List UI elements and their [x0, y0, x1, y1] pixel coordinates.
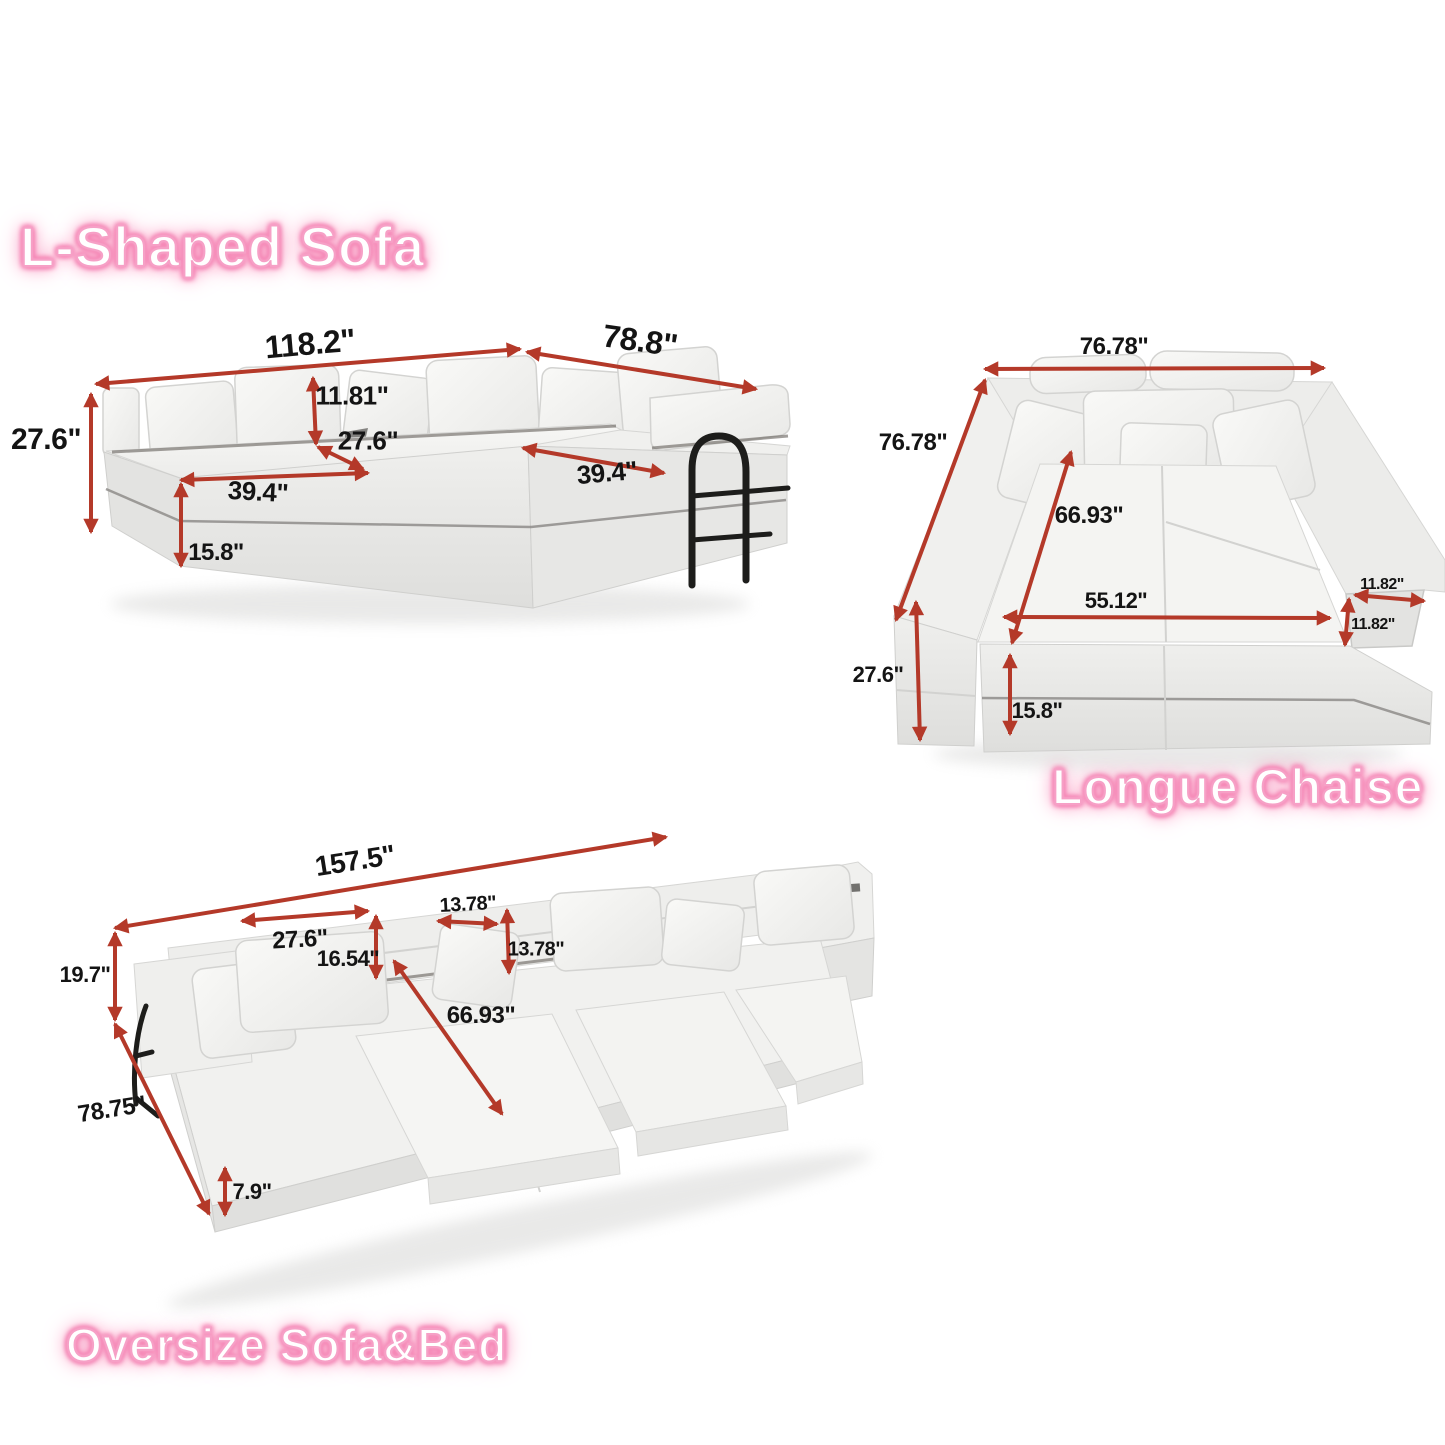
pillow	[753, 864, 855, 946]
dim-lc-overall-width: 76.78"	[1080, 333, 1148, 361]
dim-ov-bed-diagonal: 66.93"	[447, 1002, 515, 1030]
dim-l-seat-depth: 27.6"	[338, 426, 398, 457]
dim-l-seat-width-left: 39.4"	[227, 475, 289, 509]
dim-lc-overall-depth: 76.78"	[879, 429, 947, 457]
pillow	[1150, 351, 1295, 392]
dim-ov-small-pillow-height: 13.78"	[508, 939, 565, 962]
arm-cushion-left	[103, 388, 139, 456]
dim-lc-seat-diagonal: 66.93"	[1055, 502, 1123, 530]
dim-l-overall-width: 118.2"	[263, 322, 356, 367]
dim-ov-back-height: 19.7"	[60, 962, 111, 988]
section-title-l-shaped-sofa: L-Shaped Sofa	[20, 214, 425, 279]
section-title-oversize-sofa-bed: Oversize Sofa&Bed	[66, 1318, 507, 1372]
l-shaped-sofa-illustration	[91, 346, 790, 624]
dim-lc-arm-width: 11.82"	[1360, 576, 1404, 594]
section-title-longue-chaise: Longue Chaise	[1052, 758, 1423, 816]
dim-ov-small-pillow-width: 13.78"	[439, 892, 497, 918]
dim-ov-back-pillow-height: 16.54"	[317, 946, 379, 972]
product-dimension-sheet: L-Shaped Sofa Longue Chaise Oversize Sof…	[0, 0, 1445, 1445]
dim-lc-inner-width: 55.12"	[1085, 588, 1147, 614]
dim-l-overall-height: 27.6"	[11, 423, 81, 457]
dim-lc-base-height: 15.8"	[1012, 698, 1063, 724]
dim-lc-overall-height: 27.6"	[853, 662, 904, 688]
dim-lc-arm-thickness: 11.82"	[1351, 616, 1395, 634]
dim-l-seat-width-right: 39.4"	[576, 455, 639, 491]
longue-chaise-illustration	[894, 351, 1445, 770]
dim-l-base-height: 15.8"	[188, 539, 244, 567]
pillow	[549, 886, 664, 971]
pillow	[661, 898, 745, 972]
dim-l-back-pillow-height: 11.81"	[316, 381, 389, 412]
dim-ov-mattress-height: 7.9"	[232, 1179, 271, 1205]
